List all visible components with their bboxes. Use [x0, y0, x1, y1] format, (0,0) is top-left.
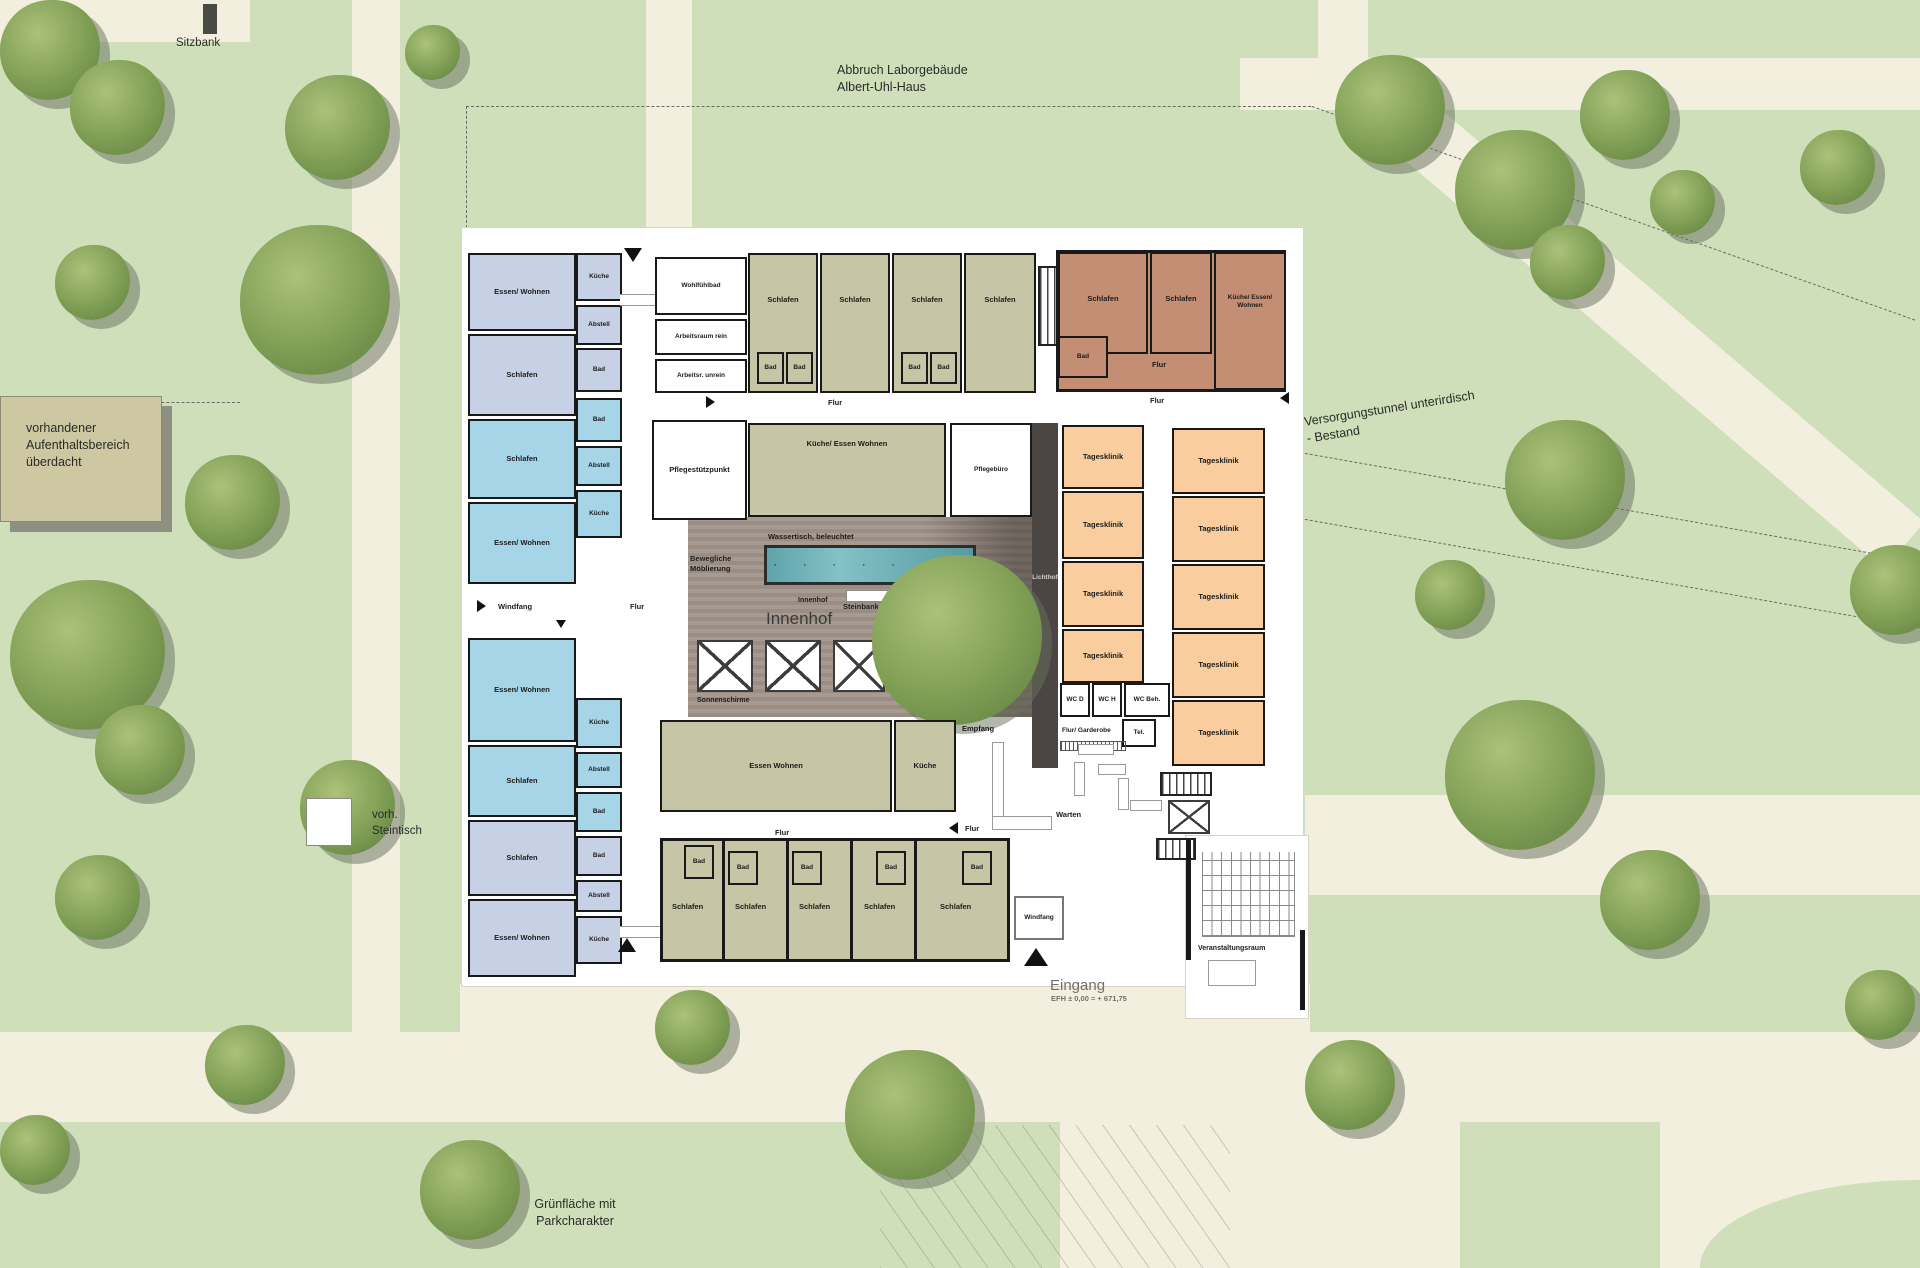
room-dayclinic: Tagesklinik	[1172, 428, 1265, 494]
tree-icon	[70, 60, 165, 155]
tunnel-line	[1300, 518, 1920, 630]
flur-label: Flur	[1152, 360, 1166, 370]
parasols-label: Sonnenschirme	[697, 696, 750, 705]
parasol-icon	[765, 640, 821, 692]
warten-label: Warten	[1056, 810, 1081, 820]
lawn-label: Grünfläche mit Parkcharakter	[505, 1196, 645, 1230]
entrance-level-label: EFH ± 0,00 = + 671,75	[1051, 994, 1127, 1004]
wall	[722, 838, 725, 962]
corridor-bridge	[620, 926, 662, 938]
room-dayclinic: Tagesklinik	[1172, 700, 1265, 766]
room-bath: Bad	[901, 352, 928, 384]
room-bath: Bad	[876, 851, 906, 885]
entrance-arrow-icon	[477, 600, 486, 612]
entrance-arrow-icon	[618, 938, 636, 952]
tree-icon	[1580, 70, 1670, 160]
room-kitchen-living: Küche/ Essen/ Wohnen	[1214, 252, 1286, 390]
room-spa-bath: Wohlfühlbad	[655, 257, 747, 315]
room-wc-men: WC H	[1092, 683, 1122, 717]
tree-icon	[55, 245, 130, 320]
room-bath: Bad	[792, 851, 822, 885]
arrow-icon	[949, 822, 958, 834]
demolition-label: Abbruch Laborgebäude Albert-Uhl-Haus	[837, 62, 968, 96]
tree-icon	[1650, 170, 1715, 235]
flur-label: Flur	[965, 824, 979, 834]
path	[1318, 0, 1368, 60]
tree-icon	[1845, 970, 1915, 1040]
flur-label: Flur	[775, 828, 789, 838]
tree-icon	[1850, 545, 1920, 635]
staircase	[1160, 772, 1212, 796]
room-bath: Bad	[576, 836, 622, 876]
room-bedroom: Schlafen	[964, 253, 1036, 393]
stone-table-label: vorh. Steintisch	[372, 808, 422, 839]
tunnel-label: Versorgungstunnel unterirdisch - Bestand	[1303, 387, 1478, 447]
entrance-arrow-icon	[624, 248, 642, 262]
room-kitchen: Küche	[894, 720, 956, 812]
bedroom-label: Schlafen	[799, 902, 830, 912]
room-dayclinic: Tagesklinik	[1062, 561, 1144, 627]
room-dayclinic: Tagesklinik	[1172, 632, 1265, 698]
bench-label: Sitzbank	[176, 36, 220, 52]
corridor-bridge	[620, 294, 656, 306]
room-bath: Bad	[786, 352, 813, 384]
demolition-outline	[466, 106, 467, 228]
wall	[1186, 840, 1191, 960]
arrow-icon	[556, 620, 566, 628]
room-living: Essen/ Wohnen	[468, 638, 576, 742]
tree-icon	[185, 455, 280, 550]
room-bedroom: Schlafen	[1150, 252, 1212, 354]
room-bedroom: Schlafen	[468, 419, 576, 499]
innenhof-title: Innenhof	[766, 608, 832, 630]
room-dayclinic: Tagesklinik	[1172, 496, 1265, 562]
wall	[1300, 930, 1305, 1010]
stone-bench-label: Steinbank	[843, 602, 879, 612]
reception-counter	[992, 816, 1052, 830]
bedroom-label: Schlafen	[940, 902, 971, 912]
windfang-label: Windfang	[498, 602, 532, 612]
room-kitchen: Küche	[576, 698, 622, 748]
tree-icon	[405, 25, 460, 80]
room-storage: Abstell	[576, 752, 622, 788]
tree-icon	[1800, 130, 1875, 205]
room-bath: Bad	[576, 398, 622, 442]
room-bath: Bad	[684, 845, 714, 879]
flur-label: Flur	[1150, 396, 1164, 406]
wall	[850, 838, 853, 962]
room-dayclinic: Tagesklinik	[1062, 491, 1144, 559]
waiting-bench	[1098, 764, 1126, 775]
bedroom-label: Schlafen	[735, 902, 766, 912]
room-kitchen: Küche	[576, 253, 622, 301]
water-table-label: Wassertisch, beleuchtet	[768, 532, 854, 542]
room-bedroom: Schlafen	[468, 334, 576, 416]
room-bath: Bad	[576, 792, 622, 832]
room-living: Essen/ Wohnen	[468, 253, 576, 331]
room-living: Essen/ Wohnen	[468, 502, 576, 584]
room-bath: Bad	[930, 352, 957, 384]
tree-icon	[1600, 850, 1700, 950]
room-bedroom: Schlafen	[468, 820, 576, 896]
bedroom-label: Schlafen	[672, 902, 703, 912]
arrow-icon	[1280, 392, 1289, 404]
arrow-icon	[706, 396, 715, 408]
room-storage: Abstell	[576, 446, 622, 486]
movable-furniture-label: Bewegliche Möblierung	[690, 554, 731, 574]
room-work-clean: Arbeitsraum rein	[655, 319, 747, 355]
path	[460, 984, 1310, 1036]
atrium-band	[1032, 423, 1058, 768]
room-living: Essen/ Wohnen	[468, 899, 576, 977]
lawn-patch	[1460, 1122, 1660, 1268]
tree-icon	[95, 705, 185, 795]
room-dayclinic: Tagesklinik	[1062, 629, 1144, 683]
entrance-arrow-icon	[1024, 948, 1048, 966]
empfang-label: Empfang	[962, 724, 994, 734]
garderobe-label: Flur/ Garderobe	[1062, 727, 1111, 735]
room-work-unclean: Arbeitsr. unrein	[655, 359, 747, 393]
tree-icon	[0, 1115, 70, 1185]
room-bath: Bad	[576, 348, 622, 392]
bench-icon	[203, 4, 217, 34]
room-kitchen: Küche	[576, 490, 622, 538]
room-bedroom: Schlafen	[468, 745, 576, 817]
room-care-office: Pflegebüro	[950, 423, 1032, 517]
waiting-bench	[1130, 800, 1162, 811]
site-plan: Sitzbank Abbruch Laborgebäude Albert-Uhl…	[0, 0, 1920, 1268]
wall	[786, 838, 789, 962]
tree-icon	[1505, 420, 1625, 540]
room-dayclinic: Tagesklinik	[1062, 425, 1144, 489]
room-bath: Bad	[728, 851, 758, 885]
flur-label: Flur	[828, 398, 842, 408]
room-bath: Bad	[757, 352, 784, 384]
wall	[914, 838, 917, 962]
tree-icon	[55, 855, 140, 940]
room-kitchen: Küche	[576, 916, 622, 964]
room-wc-women: WC D	[1060, 683, 1090, 717]
room-dayclinic: Tagesklinik	[1172, 564, 1265, 630]
room-storage: Abstell	[576, 880, 622, 912]
seating-rows	[1202, 852, 1295, 937]
podium	[1208, 960, 1256, 986]
room-windbreak: Windfang	[1014, 896, 1064, 940]
parasol-icon	[697, 640, 753, 692]
room-bedroom: Schlafen	[820, 253, 890, 393]
path	[646, 0, 692, 230]
room-bath: Bad	[962, 851, 992, 885]
room-dining-living: Essen Wohnen	[660, 720, 892, 812]
room-kitchen-living: Küche/ Essen Wohnen	[748, 423, 946, 517]
waiting-bench	[1078, 744, 1114, 755]
waiting-bench	[1074, 762, 1085, 796]
room-care-station: Pflegestützpunkt	[652, 420, 747, 520]
room-telephone: Tel.	[1122, 719, 1156, 747]
tree-icon	[1415, 560, 1485, 630]
room-wc-accessible: WC Beh.	[1124, 683, 1170, 717]
bedroom-label: Schlafen	[864, 902, 895, 912]
room-bath: Bad	[1058, 336, 1108, 378]
shelter-label: vorhandener Aufenthaltsbereich überdacht	[26, 420, 130, 471]
flur-label: Flur	[630, 602, 644, 612]
elevator	[1168, 800, 1210, 834]
demolition-outline	[466, 106, 1311, 107]
room-storage: Abstell	[576, 305, 622, 345]
stone-table-icon	[306, 798, 352, 846]
waiting-bench	[1118, 778, 1129, 810]
innenhof-small-label: Innenhof	[798, 596, 828, 605]
event-room-label: Veranstaltungsraum	[1198, 944, 1265, 953]
